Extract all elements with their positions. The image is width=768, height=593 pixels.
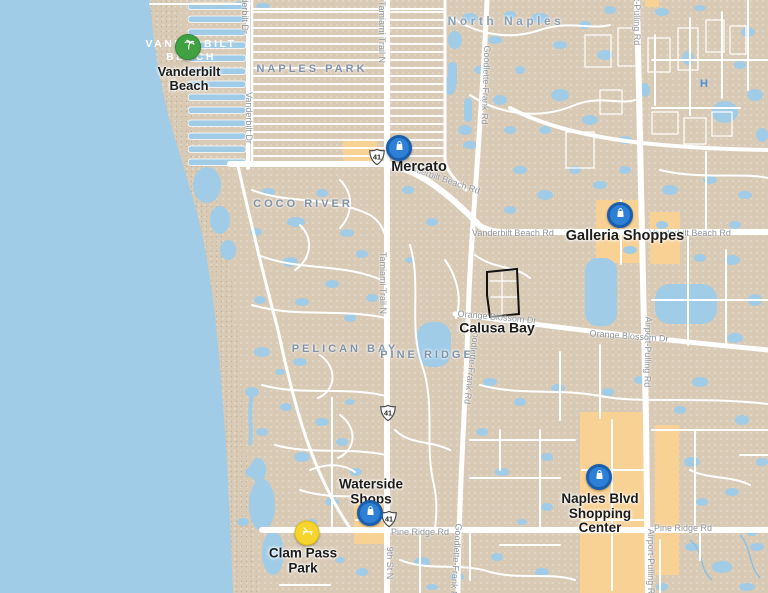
- naples-park-grid: [252, 10, 445, 162]
- vanderbilt-beach-park-marker[interactable]: [175, 34, 201, 60]
- road-label-vanderbilt-dr: Vanderbilt Dr: [240, 0, 250, 34]
- road-label-vanderbilt-dr: Vanderbilt Dr: [244, 92, 254, 144]
- poi-label-naples-blvd-shopping-center[interactable]: Naples Blvd Shopping Center: [554, 492, 646, 536]
- svg-text:41: 41: [384, 408, 392, 417]
- poi-label-mercato[interactable]: Mercato: [391, 160, 447, 176]
- road-label-tamiami-trail-n: Tamiami Trail N: [378, 252, 388, 314]
- svg-text:41: 41: [373, 152, 381, 161]
- road-label-airport-pulling-rd: Airport-Pulling Rd: [632, 0, 642, 45]
- area-label-naples-park: NAPLES PARK: [256, 63, 367, 75]
- poi-label-clam-pass-park[interactable]: Clam Pass Park: [263, 546, 343, 575]
- map-canvas[interactable]: VANDERBILT BEACH NAPLES PARK North Naple…: [0, 0, 768, 593]
- shopping-bag-icon: [364, 504, 377, 522]
- area-label-coco-river: COCO RIVER: [253, 198, 353, 210]
- poi-label-galleria-shoppes[interactable]: Galleria Shoppes: [535, 229, 715, 245]
- road-label-pine-ridge-rd: Pine Ridge Rd: [391, 527, 449, 537]
- road-label-tamiami-trail-n: Tamiami Trail N: [377, 1, 387, 63]
- poi-label-vanderbilt-beach[interactable]: Vanderbilt Beach: [149, 65, 229, 93]
- road-label-airport-pulling-rd: Airport-Pulling Rd: [646, 529, 656, 593]
- svg-text:41: 41: [385, 514, 393, 523]
- palm-tree-icon: [181, 37, 196, 57]
- area-label-north-naples: North Naples: [448, 14, 565, 28]
- naples-blvd-shopping-marker[interactable]: [586, 464, 612, 490]
- clam-pass-park-marker[interactable]: [295, 521, 320, 546]
- shopping-bag-icon: [614, 206, 627, 224]
- road-label-pine-ridge-rd: Pine Ridge Rd: [654, 523, 712, 533]
- waterside-shops-shopping-marker[interactable]: [357, 500, 383, 526]
- road-label-9th-st-n: 9th St N: [385, 547, 395, 580]
- us-41-shield: 41: [379, 404, 397, 423]
- area-label-pine-ridge: PINE RIDGE: [380, 349, 474, 361]
- hospital-icon: H: [700, 78, 708, 90]
- beach-chair-icon: [300, 524, 314, 543]
- poi-label-calusa-bay[interactable]: Calusa Bay: [459, 320, 534, 335]
- shopping-bag-icon: [393, 139, 406, 157]
- shopping-bag-icon: [593, 468, 606, 486]
- galleria-shoppes-shopping-marker[interactable]: [607, 202, 633, 228]
- us-41-shield: 41: [368, 148, 386, 167]
- mercato-shopping-marker[interactable]: [386, 135, 412, 161]
- road-label-airport-pulling-rd: Airport-Pulling Rd: [642, 317, 653, 388]
